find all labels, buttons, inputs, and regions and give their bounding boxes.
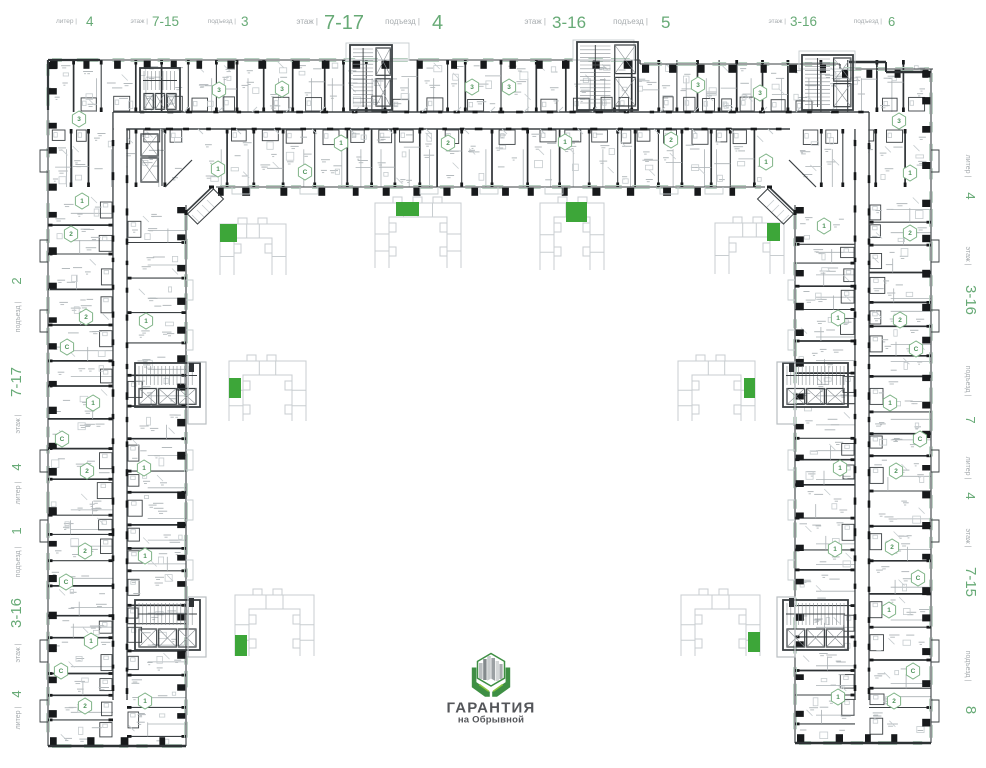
svg-text:3: 3 [280,86,284,93]
svg-text:2: 2 [83,703,87,710]
svg-text:1: 1 [836,315,840,322]
svg-text:6: 6 [888,14,895,29]
svg-text:3: 3 [897,118,901,125]
svg-text:7-15: 7-15 [962,567,979,597]
svg-text:3-16: 3-16 [552,13,586,32]
svg-text:1: 1 [339,140,343,147]
svg-text:8: 8 [962,706,979,714]
svg-text:2: 2 [908,230,912,237]
svg-text:3-16: 3-16 [790,14,817,29]
svg-text:подъезд |: подъезд | [854,18,883,25]
svg-text:1: 1 [833,546,837,553]
svg-text:литер |: литер | [964,457,971,480]
svg-text:С: С [64,579,69,586]
svg-text:подъезд |: подъезд | [208,18,237,25]
svg-text:литер |: литер | [15,481,22,504]
svg-text:С: С [60,436,65,443]
svg-text:1: 1 [888,400,892,407]
svg-text:3: 3 [758,90,762,97]
svg-text:С: С [303,169,308,176]
svg-text:5: 5 [661,13,670,32]
svg-text:этаж |: этаж | [15,414,22,433]
svg-text:4: 4 [86,14,94,29]
svg-text:1: 1 [144,318,148,325]
svg-text:подъезд |: подъезд | [613,17,648,26]
svg-text:3-16: 3-16 [8,598,25,628]
svg-text:на Обрывной: на Обрывной [458,715,524,726]
svg-text:С: С [914,346,919,353]
svg-text:подъезд |: подъезд | [964,366,971,397]
svg-text:1: 1 [764,159,768,166]
svg-text:С: С [916,575,921,582]
svg-text:2: 2 [9,277,24,284]
svg-text:4: 4 [9,463,24,470]
svg-text:1: 1 [838,465,842,472]
svg-text:1: 1 [822,223,826,230]
svg-text:3: 3 [470,84,474,91]
svg-text:7-15: 7-15 [152,14,179,29]
svg-text:4: 4 [9,690,24,697]
svg-text:2: 2 [669,137,673,144]
svg-text:этаж |: этаж | [296,17,318,26]
svg-text:1: 1 [91,400,95,407]
svg-text:1: 1 [143,698,147,705]
svg-text:3: 3 [77,116,81,123]
svg-text:2: 2 [84,314,88,321]
svg-text:7-17: 7-17 [8,367,25,397]
svg-text:1: 1 [89,638,93,645]
svg-text:2: 2 [85,468,89,475]
svg-text:1: 1 [563,139,567,146]
svg-text:этаж |: этаж | [130,18,148,25]
svg-text:2: 2 [83,548,87,555]
svg-text:этаж |: этаж | [964,247,971,266]
svg-text:подъезд |: подъезд | [15,547,22,578]
svg-text:литер |: литер | [56,18,77,25]
svg-text:подъезд |: подъезд | [964,651,971,682]
svg-text:7-17: 7-17 [324,12,364,34]
svg-text:3-16: 3-16 [962,285,979,315]
svg-text:4: 4 [963,192,978,199]
svg-text:1: 1 [9,527,24,534]
svg-text:2: 2 [69,231,73,238]
svg-text:1: 1 [908,170,912,177]
svg-text:литер |: литер | [15,706,22,729]
svg-text:4: 4 [963,492,978,499]
svg-text:подъезд |: подъезд | [15,302,22,333]
svg-text:3: 3 [217,87,221,94]
svg-text:2: 2 [890,544,894,551]
svg-text:подъезд |: подъезд | [385,17,420,26]
svg-text:3: 3 [507,84,511,91]
svg-text:1: 1 [836,694,840,701]
svg-text:этаж |: этаж | [15,643,22,662]
svg-text:С: С [65,344,70,351]
svg-text:этаж |: этаж | [768,18,786,25]
svg-text:1: 1 [80,198,84,205]
svg-text:1: 1 [887,607,891,614]
svg-text:1: 1 [142,465,146,472]
svg-text:С: С [911,668,916,675]
svg-text:С: С [59,668,64,675]
svg-text:С: С [918,436,923,443]
svg-text:этаж |: этаж | [524,17,546,26]
svg-text:4: 4 [432,12,443,34]
svg-text:1: 1 [216,166,220,173]
svg-text:этаж |: этаж | [964,529,971,548]
svg-text:2: 2 [894,468,898,475]
svg-text:7: 7 [963,416,978,423]
svg-text:3: 3 [696,82,700,89]
svg-text:2: 2 [892,698,896,705]
svg-text:литер |: литер | [964,155,971,178]
svg-text:2: 2 [446,140,450,147]
svg-text:1: 1 [143,553,147,560]
svg-text:2: 2 [898,317,902,324]
svg-text:3: 3 [241,14,249,29]
